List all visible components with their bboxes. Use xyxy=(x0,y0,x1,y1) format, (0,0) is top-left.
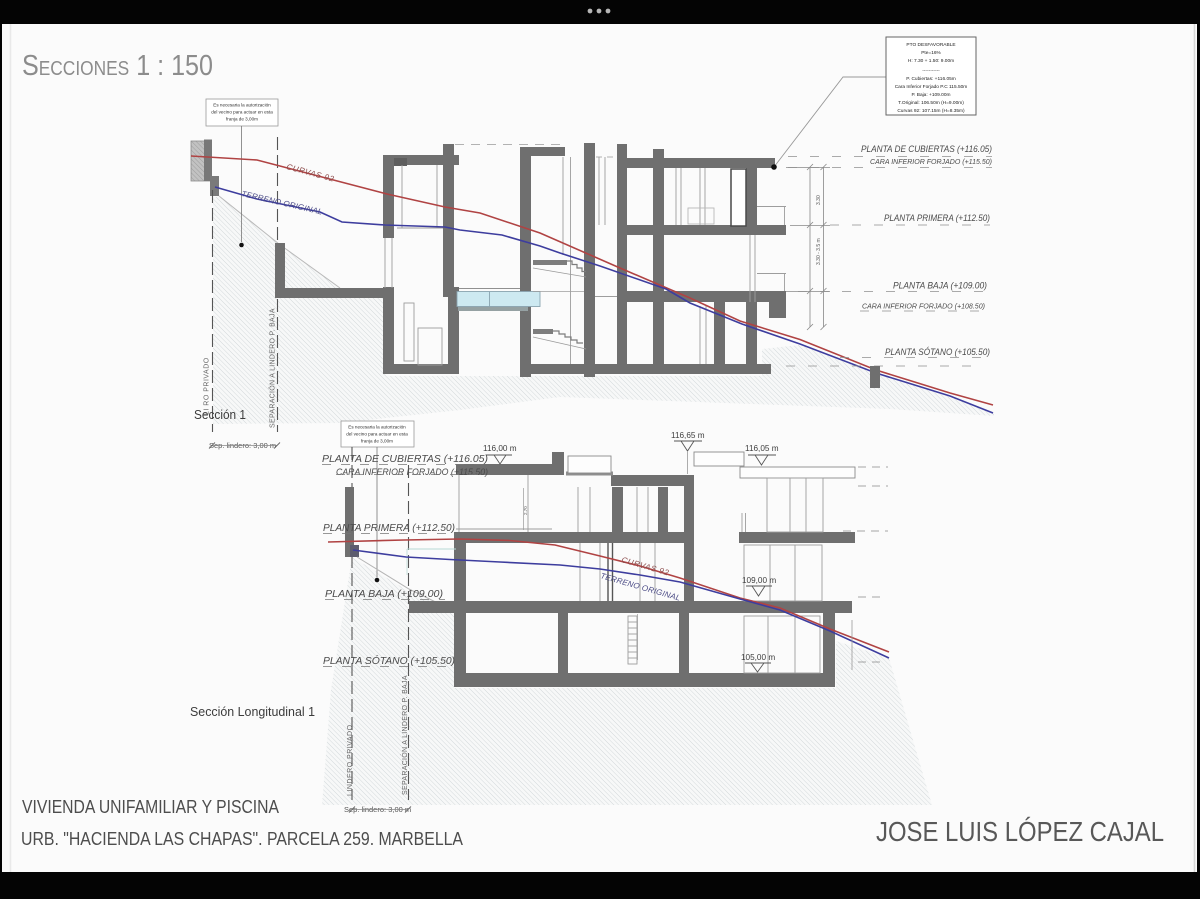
svg-text:105,00 m: 105,00 m xyxy=(741,653,775,662)
svg-text:PLANTA SÓTANO (+105.50): PLANTA SÓTANO (+105.50) xyxy=(885,347,990,357)
svg-text:SEPARACIÓN A LINDERO P. BAJA: SEPARACIÓN A LINDERO P. BAJA xyxy=(400,675,409,795)
svg-text:109,00 m: 109,00 m xyxy=(742,576,776,585)
svg-text:PLANTA DE CUBIERTAS (+116.05): PLANTA DE CUBIERTAS (+116.05) xyxy=(861,144,992,154)
svg-text:PLANTA PRIMERA (+112.50): PLANTA PRIMERA (+112.50) xyxy=(884,213,990,223)
svg-text:Curvas 92: 107.15m (H=8.35m): Curvas 92: 107.15m (H=8.35m) xyxy=(897,108,965,114)
svg-text:T.Original: 106.50m (H=9.00m): T.Original: 106.50m (H=9.00m) xyxy=(898,100,964,106)
svg-text:franja de 3,00m: franja de 3,00m xyxy=(226,117,258,122)
svg-text:PLANTA PRIMERA (+112.50): PLANTA PRIMERA (+112.50) xyxy=(323,523,455,534)
svg-text:PLANTA BAJA (+109.00): PLANTA BAJA (+109.00) xyxy=(893,281,987,291)
svg-text:2.70: 2.70 xyxy=(523,506,528,515)
svg-text:PLANTA DE CUBIERTAS (+116.05): PLANTA DE CUBIERTAS (+116.05) xyxy=(322,454,488,465)
svg-text:JOSE LUIS LÓPEZ CAJAL: JOSE LUIS LÓPEZ CAJAL xyxy=(876,816,1164,847)
svg-text:PTO DESFAVORABLE: PTO DESFAVORABLE xyxy=(906,42,955,48)
svg-text:116,05 m: 116,05 m xyxy=(745,444,779,453)
svg-text:116,00 m: 116,00 m xyxy=(483,444,517,453)
svg-text:Pte=16%: Pte=16% xyxy=(921,50,941,56)
svg-text:P. Baja: +109.00m: P. Baja: +109.00m xyxy=(912,92,951,98)
svg-text:PLANTA SÓTANO (+105.50): PLANTA SÓTANO (+105.50) xyxy=(323,654,455,667)
svg-text:-----------: ----------- xyxy=(922,69,940,74)
svg-text:Cara Inferior Forjado P.C 115.: Cara Inferior Forjado P.C 115.50m xyxy=(895,84,968,90)
svg-text:3.30: 3.30 xyxy=(816,195,822,205)
svg-text:H: 7.30 + 1.50: 9.00m: H: 7.30 + 1.50: 9.00m xyxy=(908,58,954,64)
svg-text:URB. "HACIENDA LAS CHAPAS". PA: URB. "HACIENDA LAS CHAPAS". PARCELA 259.… xyxy=(21,829,463,849)
svg-text:116,65 m: 116,65 m xyxy=(671,431,705,440)
svg-text:VIVIENDA UNIFAMILIAR Y PISCINA: VIVIENDA UNIFAMILIAR Y PISCINA xyxy=(22,797,279,817)
svg-text:P. Cubiertas: +116.05m: P. Cubiertas: +116.05m xyxy=(906,76,956,82)
svg-text:franja de 3,00m: franja de 3,00m xyxy=(361,439,393,444)
svg-text:CARA INFERIOR FORJADO (+108.50: CARA INFERIOR FORJADO (+108.50) xyxy=(862,302,985,311)
svg-text:CARA INFERIOR FORJADO (+115.50: CARA INFERIOR FORJADO (+115.50) xyxy=(870,157,992,166)
svg-text:Es necesaria la autorización: Es necesaria la autorización xyxy=(213,103,271,108)
svg-text:Es necesaria la autorización: Es necesaria la autorización xyxy=(348,425,406,430)
svg-text:3.30 - 3.5 m: 3.30 - 3.5 m xyxy=(816,238,822,265)
svg-text:PLANTA BAJA (+109.00): PLANTA BAJA (+109.00) xyxy=(325,589,443,600)
svg-text:Sección 1: Sección 1 xyxy=(194,408,246,422)
svg-text:del vecino para actuar en esta: del vecino para actuar en esta xyxy=(346,432,408,437)
svg-text:SEPARACIÓN A LINDERO P. BAJA: SEPARACIÓN A LINDERO P. BAJA xyxy=(268,308,277,428)
svg-text:del vecino para actuar en esta: del vecino para actuar en esta xyxy=(211,110,273,115)
svg-text:Sección Longitudinal 1: Sección Longitudinal 1 xyxy=(190,705,315,719)
svg-text:CARA INFERIOR FORJADO (+115.50: CARA INFERIOR FORJADO (+115.50) xyxy=(336,467,488,477)
svg-text:LI RO PRIVADO: LI RO PRIVADO xyxy=(204,357,211,415)
svg-text:LINDERO PRIVADO: LINDERO PRIVADO xyxy=(347,724,354,796)
svg-text:Secciones 1 : 150: Secciones 1 : 150 xyxy=(22,50,213,82)
